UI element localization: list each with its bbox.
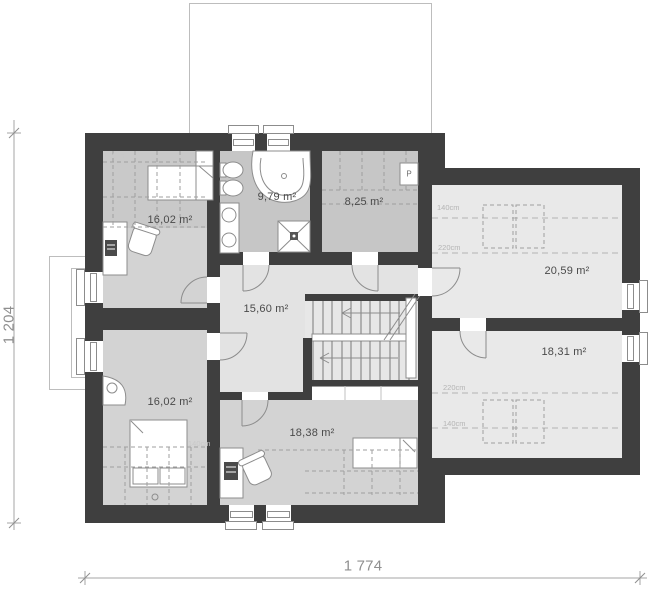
window-top-2 bbox=[264, 126, 294, 152]
balcony-door-1 bbox=[77, 270, 104, 306]
bed-double-icon bbox=[130, 420, 187, 487]
floor-plan: 16,02 m² 9,79 m² 8,25 m² 15,60 m² 20,59 … bbox=[0, 0, 657, 600]
desk-icon-2 bbox=[220, 448, 243, 498]
washer-label: P bbox=[406, 170, 411, 179]
staircase bbox=[303, 294, 421, 400]
window-bottom-1 bbox=[226, 505, 257, 530]
room-label-hall: 15,60 m² bbox=[243, 303, 288, 315]
height-mark-bedroom-top: 140cm bbox=[104, 151, 127, 160]
room-attic-bottom bbox=[432, 331, 622, 458]
height-mark-220-top: 220cm bbox=[438, 243, 461, 252]
window-top-1 bbox=[229, 126, 259, 152]
balcony-door-2 bbox=[77, 339, 104, 375]
dimension-width-label: 1 774 bbox=[344, 558, 383, 575]
understair-cabinet bbox=[312, 386, 418, 400]
bed-single-icon-2 bbox=[353, 438, 417, 468]
nightstand-icon bbox=[196, 151, 213, 166]
bidet-icon bbox=[220, 180, 243, 196]
window-right-2 bbox=[622, 333, 648, 365]
double-sink-icon bbox=[220, 203, 239, 253]
room-label-bedroom-bottom: 16,02 m² bbox=[147, 396, 192, 408]
window-right-1 bbox=[622, 281, 648, 313]
height-mark-140-top: 140cm bbox=[437, 203, 460, 212]
roof-outline-top bbox=[190, 4, 432, 134]
room-label-bedroom-top: 16,02 m² bbox=[147, 214, 192, 226]
toilet-icon bbox=[220, 162, 243, 178]
room-label-study: 18,38 m² bbox=[289, 427, 334, 439]
floorplan-drawing bbox=[0, 0, 657, 600]
desk-icon bbox=[103, 222, 127, 275]
height-mark-bedroom-bottom: 140cm bbox=[188, 439, 211, 448]
room-label-attic-bottom: 18,31 m² bbox=[541, 346, 586, 358]
computer-icon-2 bbox=[224, 462, 238, 480]
room-label-wardrobe-room: 8,25 m² bbox=[345, 196, 384, 208]
height-mark-140-bottom: 140cm bbox=[443, 419, 466, 428]
computer-icon bbox=[105, 240, 117, 256]
room-label-bathroom: 9,79 m² bbox=[258, 191, 297, 203]
dimension-height-label: 1 204 bbox=[1, 306, 18, 345]
window-bottom-2 bbox=[263, 505, 294, 530]
room-label-attic-top: 20,59 m² bbox=[544, 265, 589, 277]
stair-handrail bbox=[406, 298, 416, 378]
shower-icon bbox=[278, 221, 310, 252]
height-mark-220-bottom: 220cm bbox=[443, 383, 466, 392]
